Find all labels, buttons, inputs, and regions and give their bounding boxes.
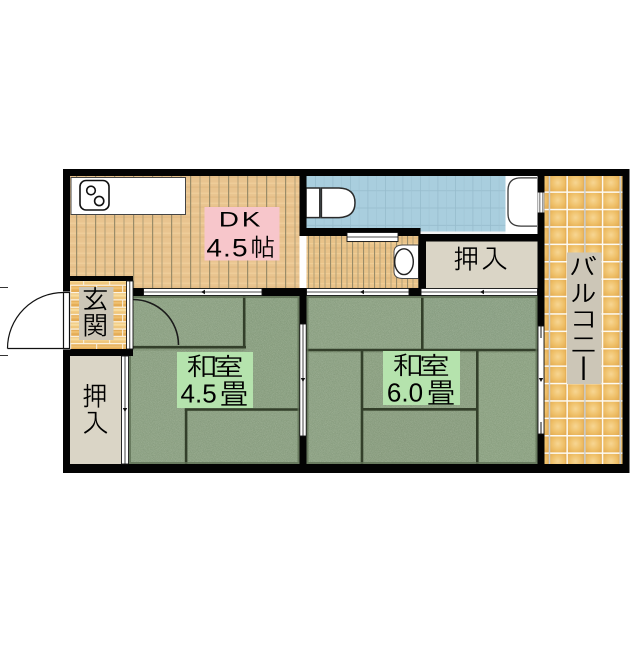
svg-text:DK: DK <box>219 207 264 231</box>
svg-text:4.5: 4.5 <box>206 234 248 262</box>
svg-text:6.0: 6.0 <box>387 378 423 408</box>
svg-text:4.5: 4.5 <box>181 379 217 409</box>
